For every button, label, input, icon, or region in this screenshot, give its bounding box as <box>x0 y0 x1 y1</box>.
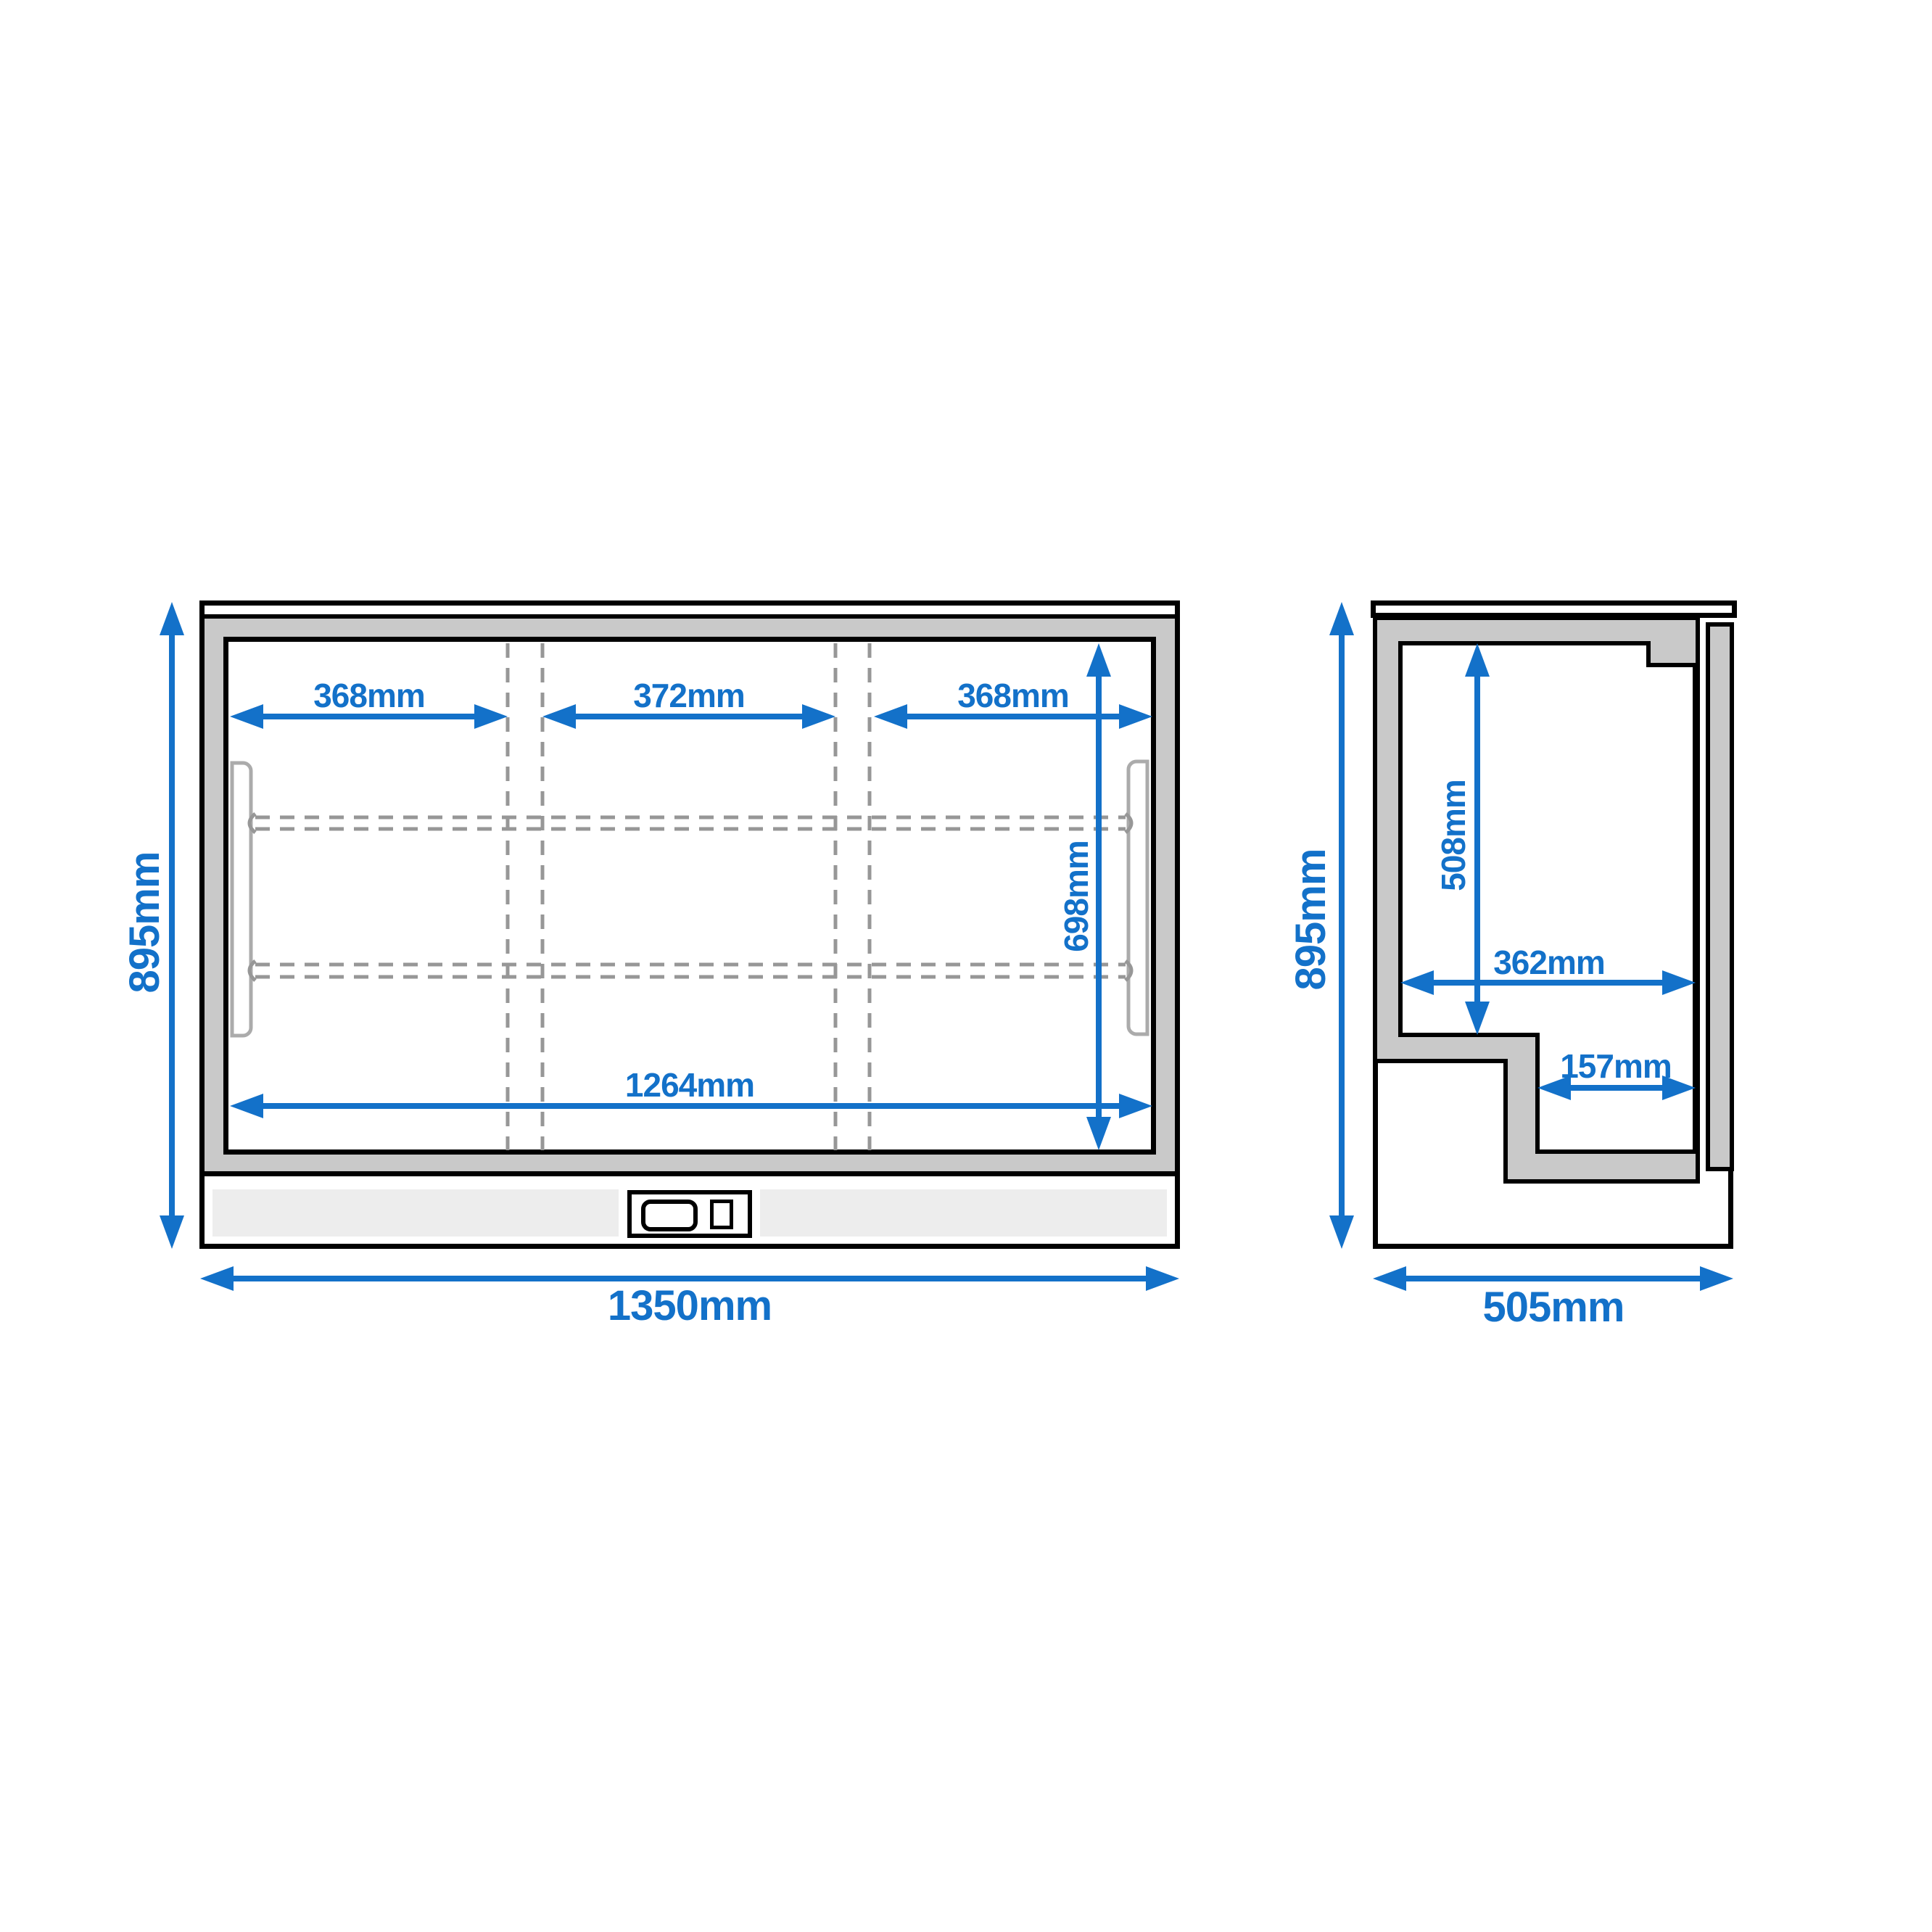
technical-drawing <box>0 0 1932 1932</box>
side-insulation-profile <box>1375 618 1698 1181</box>
section-right-width-label: 368mm <box>957 679 1069 712</box>
front-top-trim-line <box>205 614 1175 619</box>
dimension-drawing-canvas: 895mm 1350mm 368mm 372mm 368mm 698mm 126… <box>0 0 1932 1932</box>
front-overall-height-label: 895mm <box>124 852 166 994</box>
door-rail-left <box>232 763 251 1036</box>
section-middle-width-label: 372mm <box>633 679 745 712</box>
side-interior-depth-label: 362mm <box>1493 946 1605 979</box>
front-plinth-top-line <box>205 1171 1175 1176</box>
side-glass-door-panel <box>1708 624 1732 1169</box>
front-interior-width-label: 1264mm <box>625 1068 754 1102</box>
side-step-depth-label: 157mm <box>1560 1049 1672 1083</box>
side-overall-depth-label: 505mm <box>1483 1287 1625 1329</box>
front-plinth-strip-right <box>760 1189 1167 1237</box>
side-overall-height-label: 895mm <box>1290 849 1332 991</box>
front-plinth-strip-left <box>212 1189 619 1237</box>
door-rail-right <box>1128 761 1147 1034</box>
thermostat-display-icon <box>643 1202 695 1229</box>
side-interior-height-label: 508mm <box>1437 780 1470 891</box>
side-countertop-lid <box>1374 603 1735 616</box>
section-left-width-label: 368mm <box>313 679 425 712</box>
control-panel <box>629 1192 750 1236</box>
front-interior-height-label: 698mm <box>1060 841 1093 952</box>
power-switch-icon <box>712 1202 732 1228</box>
front-overall-width-label: 1350mm <box>608 1285 772 1327</box>
